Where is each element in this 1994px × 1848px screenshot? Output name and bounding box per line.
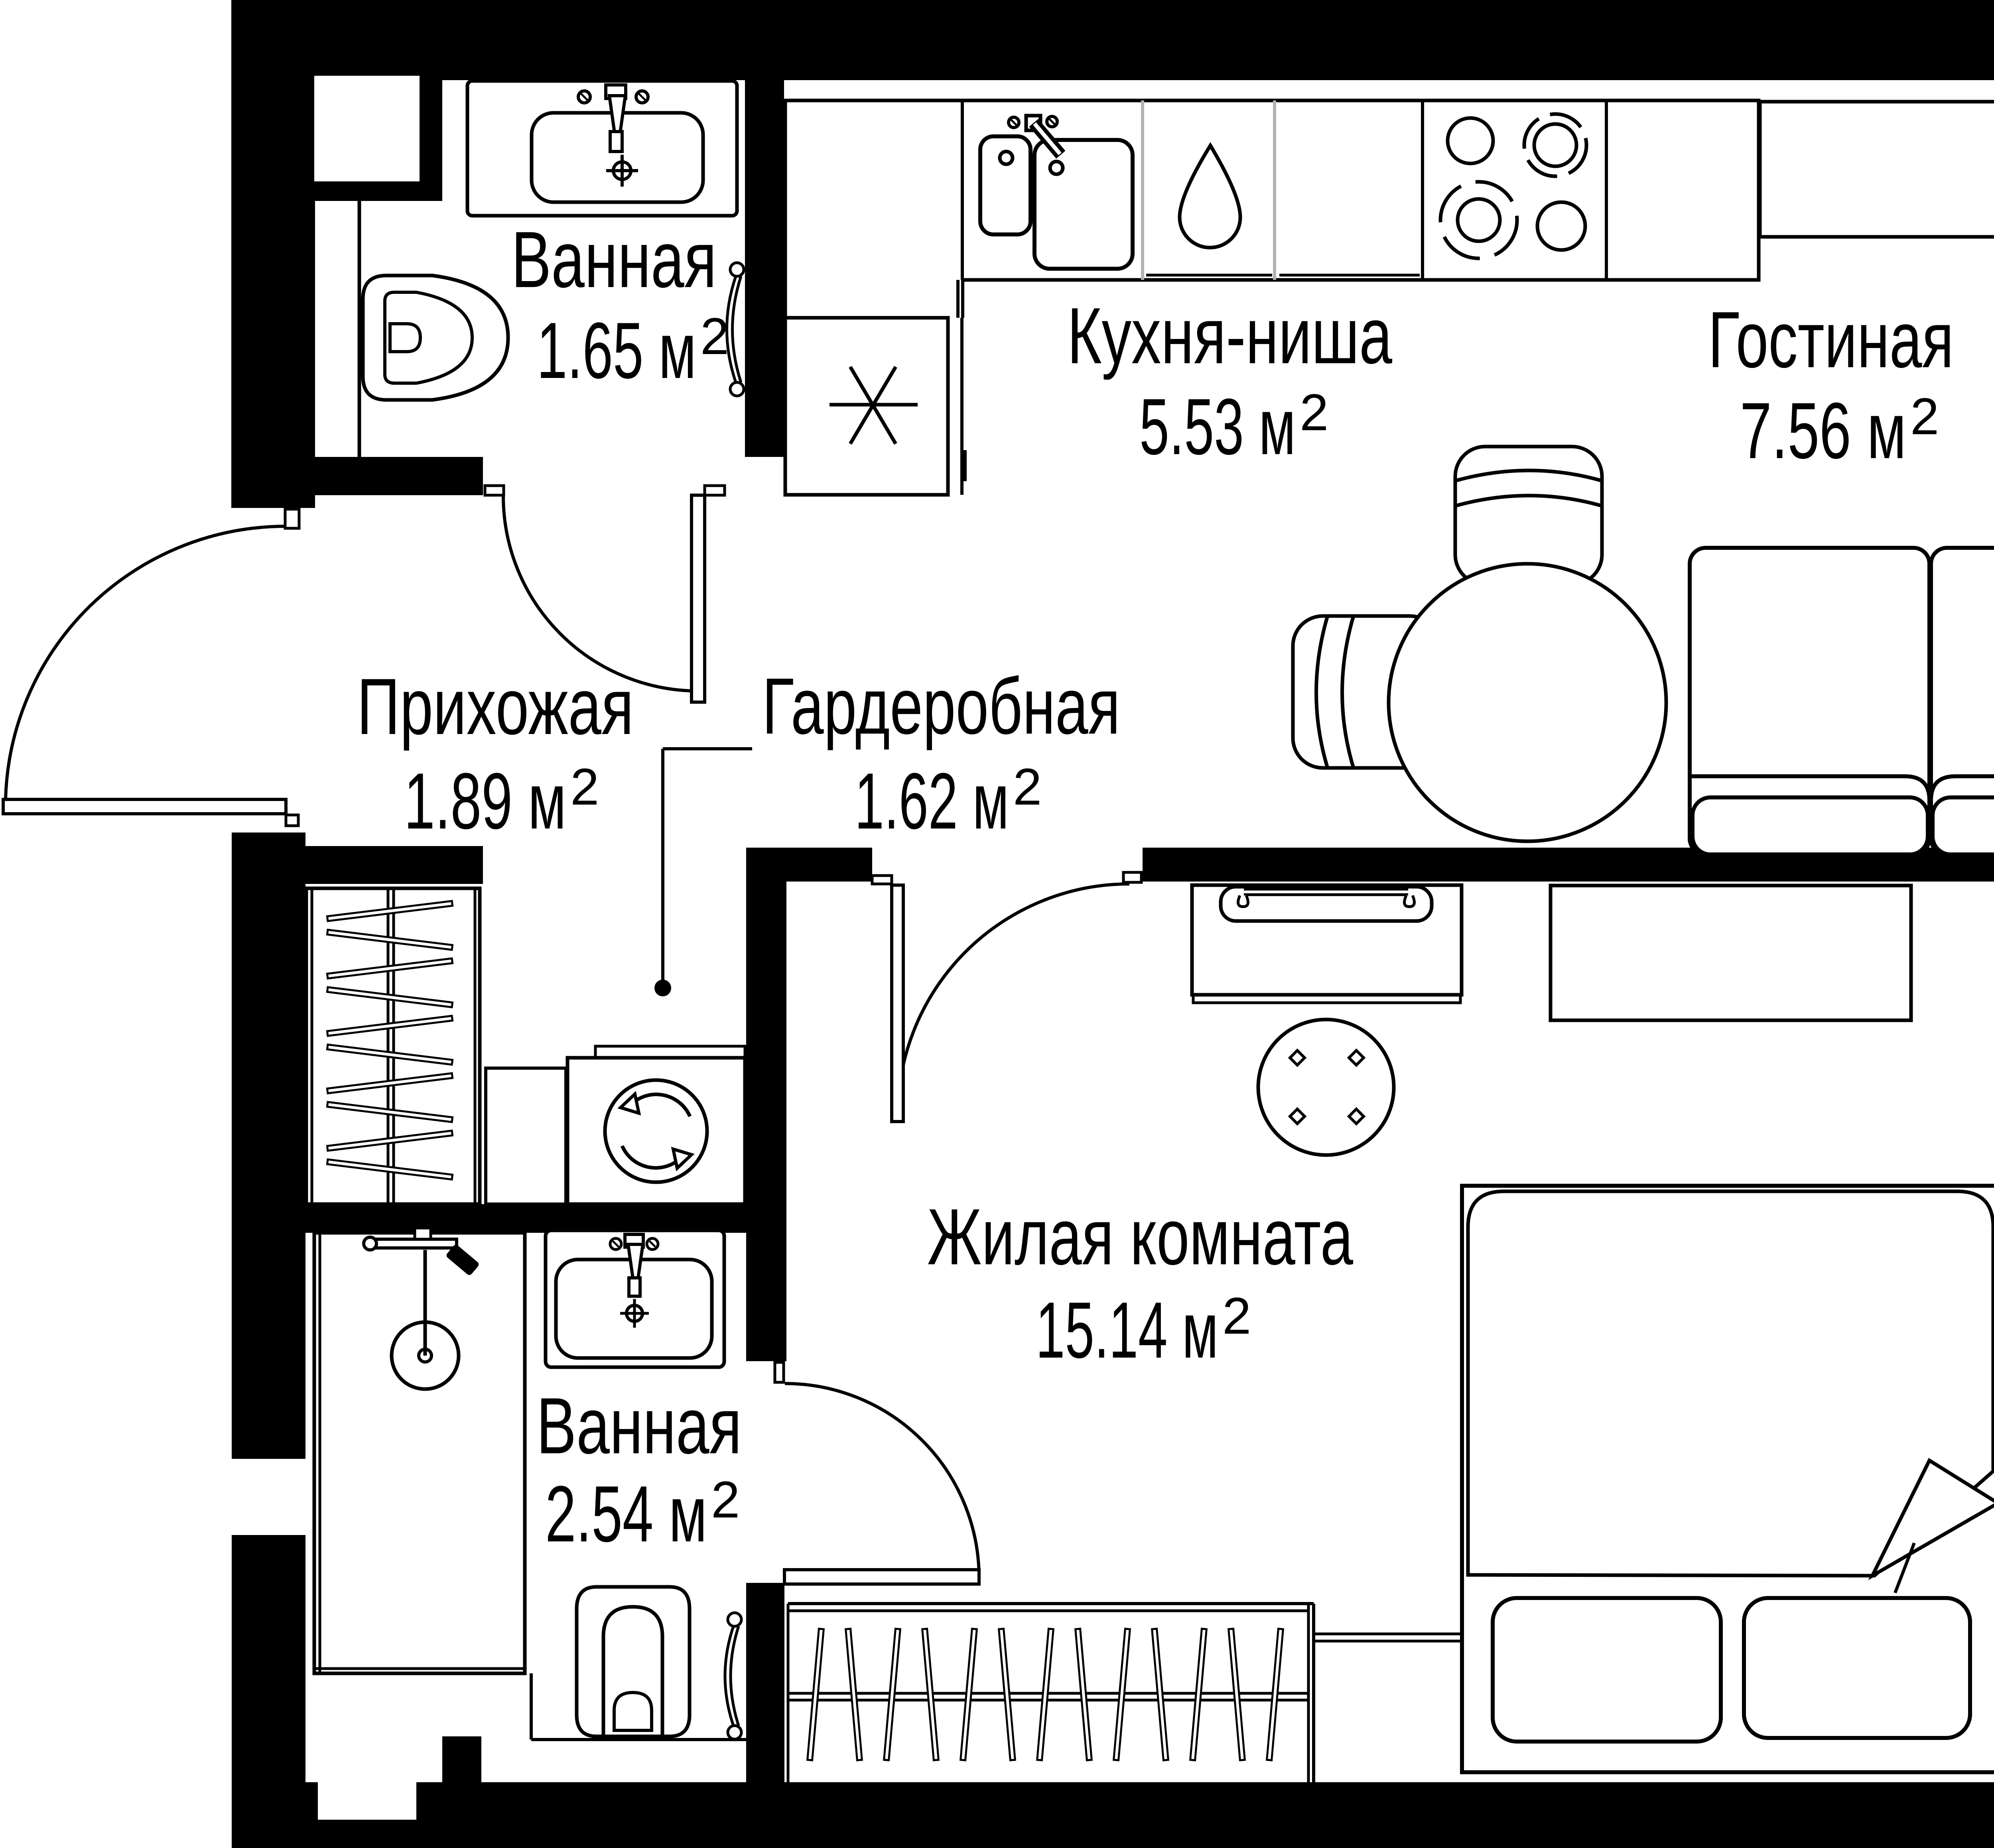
svg-text:1.62 м: 1.62 м bbox=[855, 757, 1009, 846]
svg-text:Жилая комната: Жилая комната bbox=[927, 1193, 1354, 1281]
svg-text:2: 2 bbox=[1222, 1287, 1251, 1345]
svg-text:2: 2 bbox=[1300, 383, 1328, 441]
svg-text:2: 2 bbox=[700, 307, 729, 365]
svg-text:2.54 м: 2.54 м bbox=[545, 1470, 707, 1559]
svg-text:Гардеробная: Гардеробная bbox=[762, 662, 1120, 751]
svg-text:2: 2 bbox=[711, 1470, 740, 1529]
svg-text:Кухня-ниша: Кухня-ниша bbox=[1067, 291, 1393, 380]
svg-text:Прихожая: Прихожая bbox=[357, 662, 634, 751]
svg-text:Гостиная: Гостиная bbox=[1708, 295, 1954, 384]
svg-text:1.65 м: 1.65 м bbox=[537, 306, 696, 395]
svg-text:2: 2 bbox=[1910, 387, 1939, 445]
svg-text:1.89 м: 1.89 м bbox=[404, 757, 566, 846]
svg-text:15.14 м: 15.14 м bbox=[1036, 1286, 1218, 1375]
svg-text:Ванная: Ванная bbox=[511, 215, 717, 304]
svg-text:2: 2 bbox=[570, 758, 599, 816]
svg-text:5.53 м: 5.53 м bbox=[1139, 382, 1296, 471]
svg-text:2: 2 bbox=[1013, 758, 1042, 816]
svg-text:7.56 м: 7.56 м bbox=[1740, 386, 1906, 475]
svg-text:Ванная: Ванная bbox=[536, 1382, 742, 1470]
